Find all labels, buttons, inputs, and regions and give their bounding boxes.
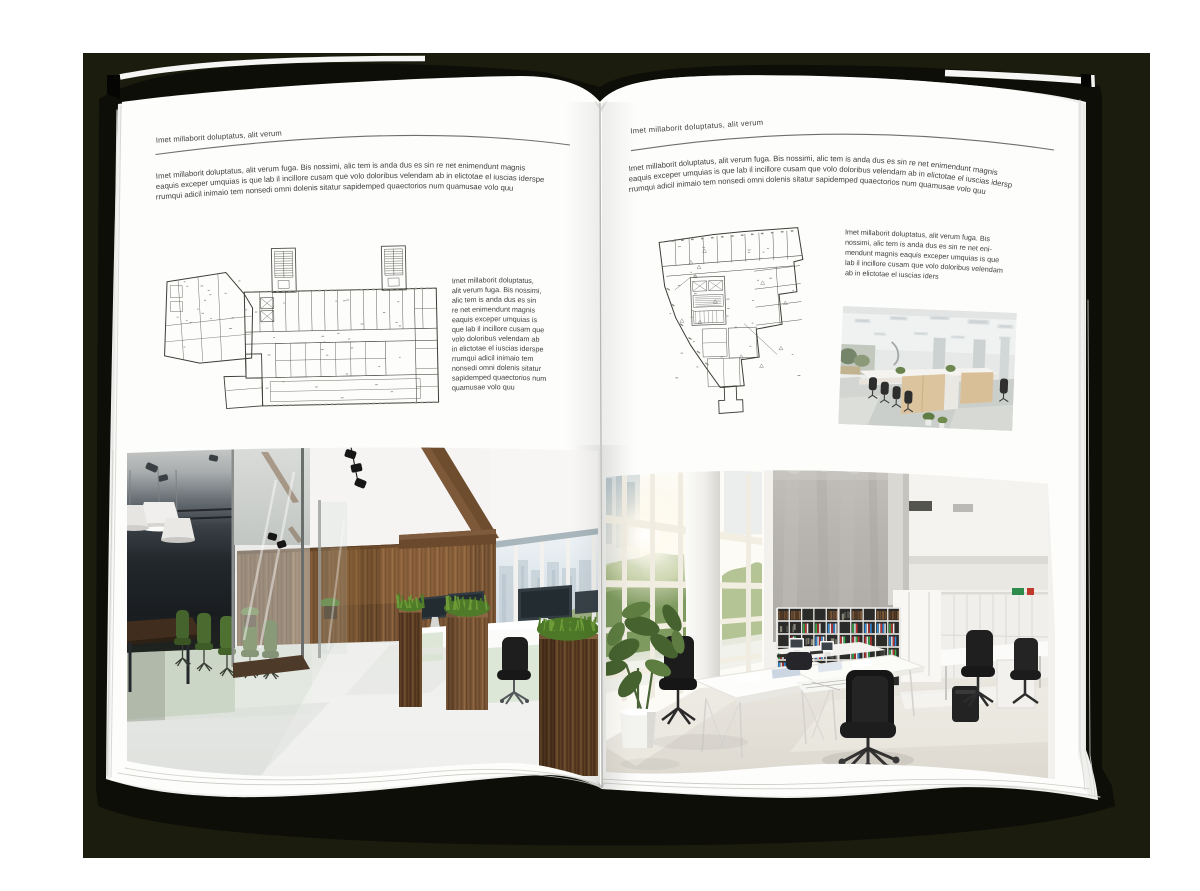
svg-text:rrumqui adicil inimaio tem: rrumqui adicil inimaio tem (452, 353, 534, 363)
svg-text:Imet millaborit doluptatus,: Imet millaborit doluptatus, (452, 275, 534, 285)
svg-text:quamusae volo quu: quamusae volo quu (452, 382, 515, 392)
svg-text:que lab il incillore cusam que: que lab il incillore cusam que (452, 324, 545, 334)
svg-text:alit verum fuga. Bis nossimi,: alit verum fuga. Bis nossimi, (452, 285, 542, 295)
svg-text:nonsedi omni dolenis sitatur: nonsedi omni dolenis sitatur (452, 363, 542, 373)
svg-text:eaquis exceper umquias is: eaquis exceper umquias is (452, 314, 538, 324)
svg-text:sapidemped quaectorios num: sapidemped quaectorios num (452, 373, 547, 384)
svg-text:volo doloribus velendam ab: volo doloribus velendam ab (452, 334, 540, 344)
svg-text:re net enimendunt magnis: re net enimendunt magnis (452, 305, 536, 315)
svg-text:alic tem is anda dus es sin: alic tem is anda dus es sin (452, 295, 537, 305)
svg-text:in elictotae el iuscias idersp: in elictotae el iuscias iderspe (452, 343, 544, 353)
